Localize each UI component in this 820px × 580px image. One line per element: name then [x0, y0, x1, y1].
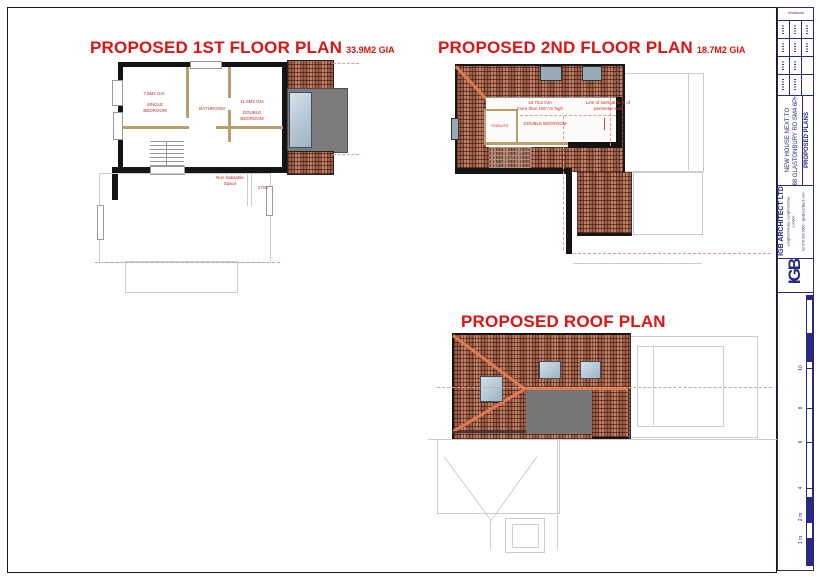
setting-out-line: [333, 154, 359, 155]
titleblock-divider: [802, 95, 803, 185]
scale-bar-segment: [807, 497, 812, 523]
staircase: [150, 141, 184, 167]
revision-entry: [782, 78, 784, 90]
neighbour-outline: [621, 73, 704, 172]
eaves-line: [452, 431, 526, 433]
scale-label: 8: [798, 401, 804, 415]
scale-label: 10: [798, 361, 804, 375]
skylight: [289, 92, 312, 148]
note-level: 2700: [250, 185, 276, 191]
room-label: BATHROOM: [192, 106, 232, 112]
room-area-label: 7.5M2 GIA: [128, 91, 180, 97]
titleblock-divider: [778, 292, 814, 293]
existing-wall-line: [247, 173, 248, 206]
revision-entry: [806, 42, 808, 52]
window: [113, 112, 123, 140]
room-area-label: 11.5M2 GIA: [226, 99, 278, 105]
flat-roof: [526, 390, 592, 434]
titleblock-divider: [778, 38, 814, 39]
scale-bar-tick: [806, 488, 813, 489]
setting-out-line: [573, 253, 771, 254]
tiled-roof: [592, 390, 629, 440]
revision-entry: [782, 60, 784, 70]
gia-note-line2: more than 150 cm high: [505, 106, 575, 112]
room-label: SINGLE BEDROOM: [139, 102, 171, 114]
bay-window: [112, 80, 123, 106]
existing-outline: [437, 439, 560, 514]
scale-bar-segment: [807, 296, 812, 300]
revisions-header: revisions: [778, 10, 814, 15]
scale-bar-tick: [806, 368, 813, 369]
tiled-roof: [577, 172, 632, 236]
titleblock-divider: [778, 20, 814, 21]
existing-ridge-line: [490, 520, 491, 549]
existing-building-outline: [125, 261, 238, 293]
staircase-rail: [166, 141, 167, 167]
plan1-title-row: PROPOSED 1ST FLOOR PLAN 33.9M2 GIA: [90, 38, 395, 58]
existing-building-outline: [99, 173, 271, 263]
revision-entry: [782, 24, 784, 34]
room-label: ENSUITE: [487, 123, 513, 128]
neighbour-wall-line: [573, 263, 702, 264]
neighbour-wall-line: [688, 73, 689, 170]
note-non-habitable: Non habitable Space: [215, 175, 245, 187]
partition-wall: [216, 126, 283, 129]
setting-out-line: [437, 387, 772, 388]
partition-wall: [186, 67, 189, 118]
revision-entry: [782, 42, 784, 52]
skylight: [480, 376, 503, 402]
room-label: DOUBLE BEDROOM: [235, 110, 269, 122]
partition-wall: [228, 67, 231, 98]
firm-contact: tel 078 000 0000 - igb@architect.com: [802, 187, 807, 257]
plan1-gia: 33.9M2 GIA: [346, 45, 395, 55]
setting-out-line: [333, 63, 359, 64]
scale-label: 6: [798, 435, 804, 449]
rooflight: [451, 118, 459, 140]
firm-address-line1: Longford House, Longford Drive: [787, 187, 792, 257]
revision-entry: [794, 24, 796, 34]
window: [190, 61, 222, 69]
titleblock-divider: [801, 20, 802, 95]
existing-outline: [512, 524, 539, 548]
firm-logo: IGB: [785, 255, 805, 289]
plan3-title: PROPOSED ROOF PLAN: [461, 312, 666, 332]
scale-bar-tick: [806, 442, 813, 443]
skylight: [539, 361, 561, 379]
scale-label: 4: [798, 481, 804, 495]
revision-entry: [806, 24, 808, 34]
scale-bar-segment: [807, 333, 812, 362]
neighbour-outline: [633, 172, 703, 235]
plan2-title-row: PROPOSED 2ND FLOOR PLAN 18.7M2 GIA: [438, 38, 745, 58]
plan2-title: PROPOSED 2ND FLOOR PLAN: [438, 38, 693, 58]
wall: [455, 168, 572, 174]
plan1-title: PROPOSED 1ST FLOOR PLAN: [90, 38, 342, 58]
scale-bar-tick: [806, 517, 813, 518]
partition-wall: [123, 126, 189, 129]
leader-line: [604, 118, 605, 130]
scale-label: 2 m: [798, 510, 804, 524]
wall: [568, 142, 622, 148]
rooflight: [582, 66, 602, 81]
drawing-sheet: PROPOSED 1ST FLOOR PLAN 33.9M2 GIA 7.5M2…: [0, 0, 820, 580]
firm-address: Longford House, Longford Drive London: [787, 187, 796, 257]
scale-bar-tick: [806, 408, 813, 409]
internal-face-line: [520, 115, 616, 116]
perimeter-note: Line of internal face of perimeter wall: [578, 100, 638, 112]
setting-out-line: [95, 262, 280, 263]
tiled-roof-strip: [287, 151, 334, 175]
gia-note: 18.7m2 GIA more than 150 cm high: [505, 100, 575, 112]
wall: [566, 174, 572, 254]
scale-bar-segment: [807, 538, 812, 565]
room-label: DOUBLE BEDROOM: [520, 121, 570, 127]
existing-wall-line: [557, 439, 558, 549]
setting-out-line: [563, 116, 564, 250]
plan2-gia: 18.7M2 GIA: [697, 45, 746, 55]
existing-window: [97, 205, 104, 240]
rooflight: [540, 66, 562, 81]
skylight: [580, 361, 601, 379]
scale-label: 1 m: [798, 533, 804, 547]
neighbour-wall-line: [653, 346, 654, 425]
firm-address-line2: London: [791, 187, 796, 257]
tiled-roof-strip: [287, 60, 334, 90]
revision-entry: [794, 42, 796, 52]
